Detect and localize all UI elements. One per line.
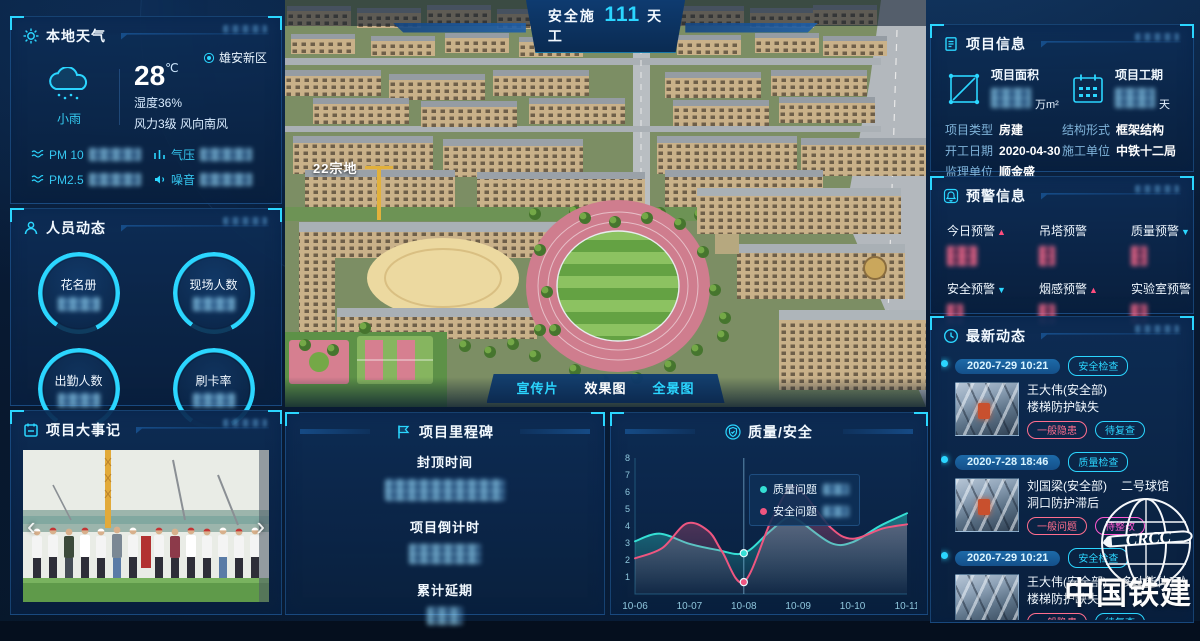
event-photo[interactable]: ‹ › <box>23 450 269 602</box>
svg-text:4: 4 <box>625 521 630 531</box>
trend-up-icon: ▲ <box>1089 285 1098 295</box>
tooltip-value-blurred <box>823 484 849 495</box>
entry-type-badge: 质量检查 <box>1068 452 1128 472</box>
status-badge: 待复查 <box>1095 421 1145 439</box>
ring-label: 现场人数 <box>189 276 237 293</box>
svg-text:10-07: 10-07 <box>677 601 703 612</box>
carousel-next-arrow[interactable]: › <box>256 513 265 539</box>
location-pin-icon <box>203 52 215 64</box>
sun-icon <box>23 28 39 44</box>
milestone-countdown: 项目倒计时 <box>409 517 481 564</box>
legend-dot-safety <box>760 508 767 515</box>
svg-text:3: 3 <box>625 538 630 548</box>
trend-up-icon: ▲ <box>997 227 1006 237</box>
ring-value-blurred <box>58 297 100 311</box>
svg-text:10-11: 10-11 <box>895 601 917 612</box>
noise-value-blurred <box>200 173 252 186</box>
safety-days-header: 安全施工 111 天 <box>393 0 819 53</box>
duration-label: 项目工期 <box>1115 66 1170 83</box>
ring-value-blurred <box>193 297 235 311</box>
latest-title: 最新动态 <box>966 326 1026 346</box>
project-info-panel: 项目信息 项目面积 万m² 项目工期 天 项目类型房建 结构形式框架结构 开工日… <box>930 24 1194 172</box>
inspector-name: 刘国梁(安全部) <box>1027 478 1107 495</box>
pm25-value-blurred <box>89 173 141 186</box>
shield-check-icon <box>725 424 741 440</box>
svg-text:1: 1 <box>625 572 630 582</box>
temperature-value: 28 <box>134 60 165 91</box>
events-title: 项目大事记 <box>46 420 121 440</box>
severity-badge: 一般隐患 <box>1027 613 1087 620</box>
tab-panorama[interactable]: 全景图 <box>653 378 695 397</box>
condition-label: 小雨 <box>33 110 105 127</box>
quality-safety-chart: 1234567810-0610-0710-0810-0910-1010-11 质… <box>611 446 927 621</box>
pressure-icon <box>153 148 166 161</box>
svg-text:7: 7 <box>625 470 630 480</box>
severity-badge: 一般隐患 <box>1027 421 1087 439</box>
milestone-label: 累计延期 <box>417 580 473 599</box>
group-photo-illustration <box>23 450 269 602</box>
site-parcel-label: 22宗地 <box>313 158 357 177</box>
noise-label: 噪音 <box>171 171 195 188</box>
quality-safety-title: 质量/安全 <box>748 422 813 442</box>
duration-unit: 天 <box>1159 96 1170 112</box>
area-label: 项目面积 <box>991 66 1059 83</box>
legend-dot-quality <box>760 486 767 493</box>
pressure-value-blurred <box>200 148 252 161</box>
milestone-photo-panel: 项目大事记 <box>10 410 282 615</box>
carousel-prev-arrow[interactable]: ‹ <box>27 513 36 539</box>
legend-label-quality: 质量问题 <box>773 481 817 497</box>
svg-text:10-10: 10-10 <box>840 601 866 612</box>
alerts-panel: 预警信息 今日预警▲ 吊塔预警 质量预警▼ 安全预警▼ 烟感预警▲ 实验室预警 <box>930 176 1194 314</box>
issue-text: 楼梯防护缺失 <box>1027 399 1145 416</box>
ring-label: 出勤人数 <box>54 372 102 389</box>
entry-photo[interactable] <box>955 478 1019 532</box>
milestone-label: 项目倒计时 <box>410 517 480 536</box>
rain-cloud-icon <box>43 67 95 103</box>
ring-label: 刷卡率 <box>195 372 231 389</box>
weather-panel: 本地天气 雄安新区 小雨 28℃ 湿度36% 风力3级 风向南风 PM 10 气… <box>10 16 282 204</box>
project-type: 项目类型房建 <box>945 120 1062 141</box>
svg-text:5: 5 <box>625 504 630 514</box>
trend-down-icon: ▼ <box>1181 227 1190 237</box>
structure-type: 结构形式框架结构 <box>1062 120 1179 141</box>
tab-promo-video[interactable]: 宣传片 <box>516 378 558 397</box>
haze-icon <box>31 173 44 186</box>
personnel-title: 人员动态 <box>46 218 106 238</box>
view-tabs: 宣传片 效果图 全景图 <box>486 374 724 403</box>
humidity-label: 湿度36% <box>134 94 228 111</box>
bell-icon <box>943 188 959 204</box>
site-3d-view: 22宗地 安全施工 111 天 宣传片 效果图 全景图 <box>285 0 926 407</box>
flag-icon <box>396 424 412 440</box>
contractor: 施工单位中铁十二局 <box>1062 141 1179 162</box>
ring-label: 花名册 <box>60 276 96 293</box>
milestone-value-blurred <box>385 479 505 501</box>
start-date: 开工日期2020-04-30 <box>945 141 1062 162</box>
personnel-panel: 人员动态 花名册 现场人数 出勤人数 刷卡率 <box>10 208 282 406</box>
alert-value-blurred <box>947 246 977 266</box>
header-left-wing <box>393 23 526 33</box>
quality-safety-panel: 质量/安全 1234567810-0610-0710-0810-0910-101… <box>610 412 928 615</box>
aerial-render <box>285 0 926 407</box>
svg-text:10-08: 10-08 <box>731 601 757 612</box>
alert-value-blurred <box>1039 246 1055 266</box>
tab-render-view[interactable]: 效果图 <box>584 378 626 397</box>
weather-condition: 小雨 <box>33 67 105 127</box>
noise-icon <box>153 173 166 186</box>
milestone-label: 封顶时间 <box>417 452 473 471</box>
stat-ring-roster: 花名册 <box>38 252 120 334</box>
entry-date: 2020-7-28 18:46 <box>955 455 1060 470</box>
entry-type-badge: 安全检查 <box>1068 356 1128 376</box>
calendar-note-icon <box>23 422 39 438</box>
milestone-title: 项目里程碑 <box>419 422 494 442</box>
activity-entry[interactable]: 2020-7-29 10:21安全检查 王大伟(安全部) 楼梯防护缺失 一般隐患… <box>941 356 1185 439</box>
pm10-value-blurred <box>89 148 141 161</box>
location-badge: 雄安新区 <box>203 49 267 66</box>
chart-tooltip: 质量问题 安全问题 <box>749 474 860 526</box>
milestone-delay: 累计延期 <box>417 580 473 625</box>
milestone-value-blurred <box>409 544 481 564</box>
legend-label-safety: 安全问题 <box>773 503 817 519</box>
ring-value-blurred <box>58 393 100 407</box>
location-name: 雄安新区 <box>219 49 267 66</box>
area-icon <box>945 70 983 108</box>
status-badge: 待复查 <box>1095 613 1145 620</box>
safety-days-count: 111 <box>604 3 640 27</box>
milestone-panel: 项目里程碑 封顶时间 项目倒计时 累计延期 <box>285 412 605 615</box>
person-icon <box>23 220 39 236</box>
pm10-label: PM 10 <box>49 148 84 162</box>
entry-location: 二号球馆 <box>1121 478 1169 495</box>
safety-days-unit: 天 <box>647 6 663 26</box>
alert-quality: 质量预警▼ <box>1131 222 1193 266</box>
alert-crane: 吊塔预警 <box>1039 222 1127 266</box>
crcc-logo: CRCC 中国铁建 <box>1022 495 1198 605</box>
project-duration-stat: 项目工期 天 <box>1069 66 1183 112</box>
pressure-label: 气压 <box>171 146 195 163</box>
safety-days-label: 安全施工 <box>548 6 598 46</box>
area-chart: 1234567810-0610-0710-0810-0910-1010-11 <box>611 446 917 616</box>
inspector-name: 王大伟(安全部) <box>1027 382 1107 399</box>
weather-title: 本地天气 <box>46 26 106 46</box>
project-info-title: 项目信息 <box>966 34 1026 54</box>
stat-ring-onsite: 现场人数 <box>173 252 255 334</box>
milestone-value-blurred <box>427 607 463 625</box>
temperature-unit: ℃ <box>165 61 178 75</box>
area-value-blurred <box>991 88 1031 108</box>
alert-today: 今日预警▲ <box>947 222 1035 266</box>
entry-photo[interactable] <box>955 382 1019 436</box>
svg-text:2: 2 <box>625 555 630 565</box>
haze-icon <box>31 148 44 161</box>
svg-text:10-09: 10-09 <box>785 601 811 612</box>
entry-photo[interactable] <box>955 574 1019 620</box>
wind-label: 风力3级 风向南风 <box>134 115 228 132</box>
area-unit: 万m² <box>1035 96 1059 112</box>
crcc-text: CRCC <box>1125 527 1172 549</box>
header-right-wing <box>685 23 818 33</box>
svg-text:8: 8 <box>625 453 630 463</box>
alerts-title: 预警信息 <box>966 186 1026 206</box>
svg-text:6: 6 <box>625 487 630 497</box>
document-icon <box>943 36 959 52</box>
ring-value-blurred <box>193 393 235 407</box>
crcc-chinese-name: 中国铁建 <box>1064 568 1192 613</box>
duration-value-blurred <box>1115 88 1155 108</box>
entry-date: 2020-7-29 10:21 <box>955 359 1060 374</box>
project-area-stat: 项目面积 万m² <box>945 66 1059 112</box>
clock-icon <box>943 328 959 344</box>
alert-value-blurred <box>1131 246 1147 266</box>
svg-text:10-06: 10-06 <box>622 601 648 612</box>
milestone-topping-date: 封顶时间 <box>385 452 505 501</box>
pm25-label: PM2.5 <box>49 173 84 187</box>
trend-down-icon: ▼ <box>997 285 1006 295</box>
tooltip-value-blurred <box>823 506 849 517</box>
calendar-icon <box>1069 70 1107 108</box>
